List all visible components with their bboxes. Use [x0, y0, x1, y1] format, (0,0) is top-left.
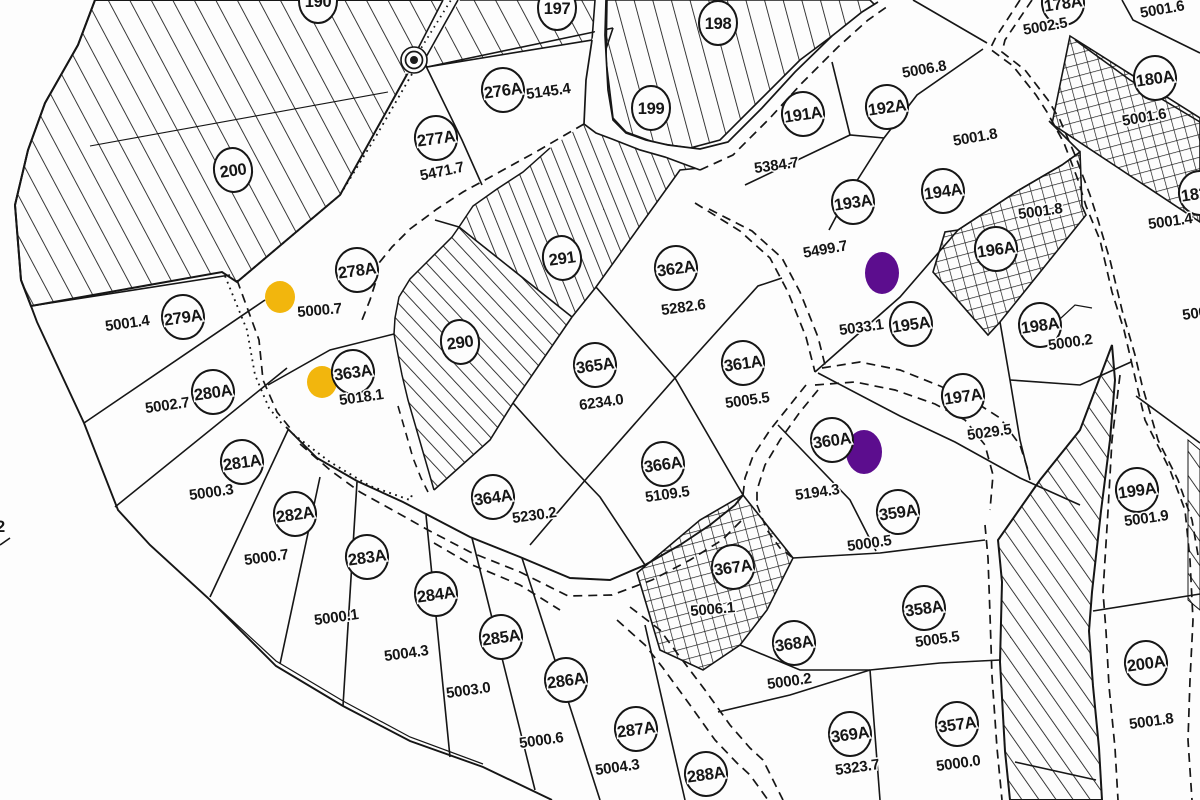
svg-text:200: 200: [219, 160, 248, 182]
svg-text:2: 2: [0, 518, 5, 536]
svg-text:190: 190: [305, 0, 332, 11]
svg-text:198: 198: [705, 15, 732, 33]
svg-text:199: 199: [638, 100, 665, 118]
svg-text:290: 290: [446, 332, 475, 354]
svg-text:291: 291: [548, 248, 577, 270]
svg-text:197: 197: [544, 0, 571, 18]
svg-text:500: 500: [1181, 304, 1200, 324]
